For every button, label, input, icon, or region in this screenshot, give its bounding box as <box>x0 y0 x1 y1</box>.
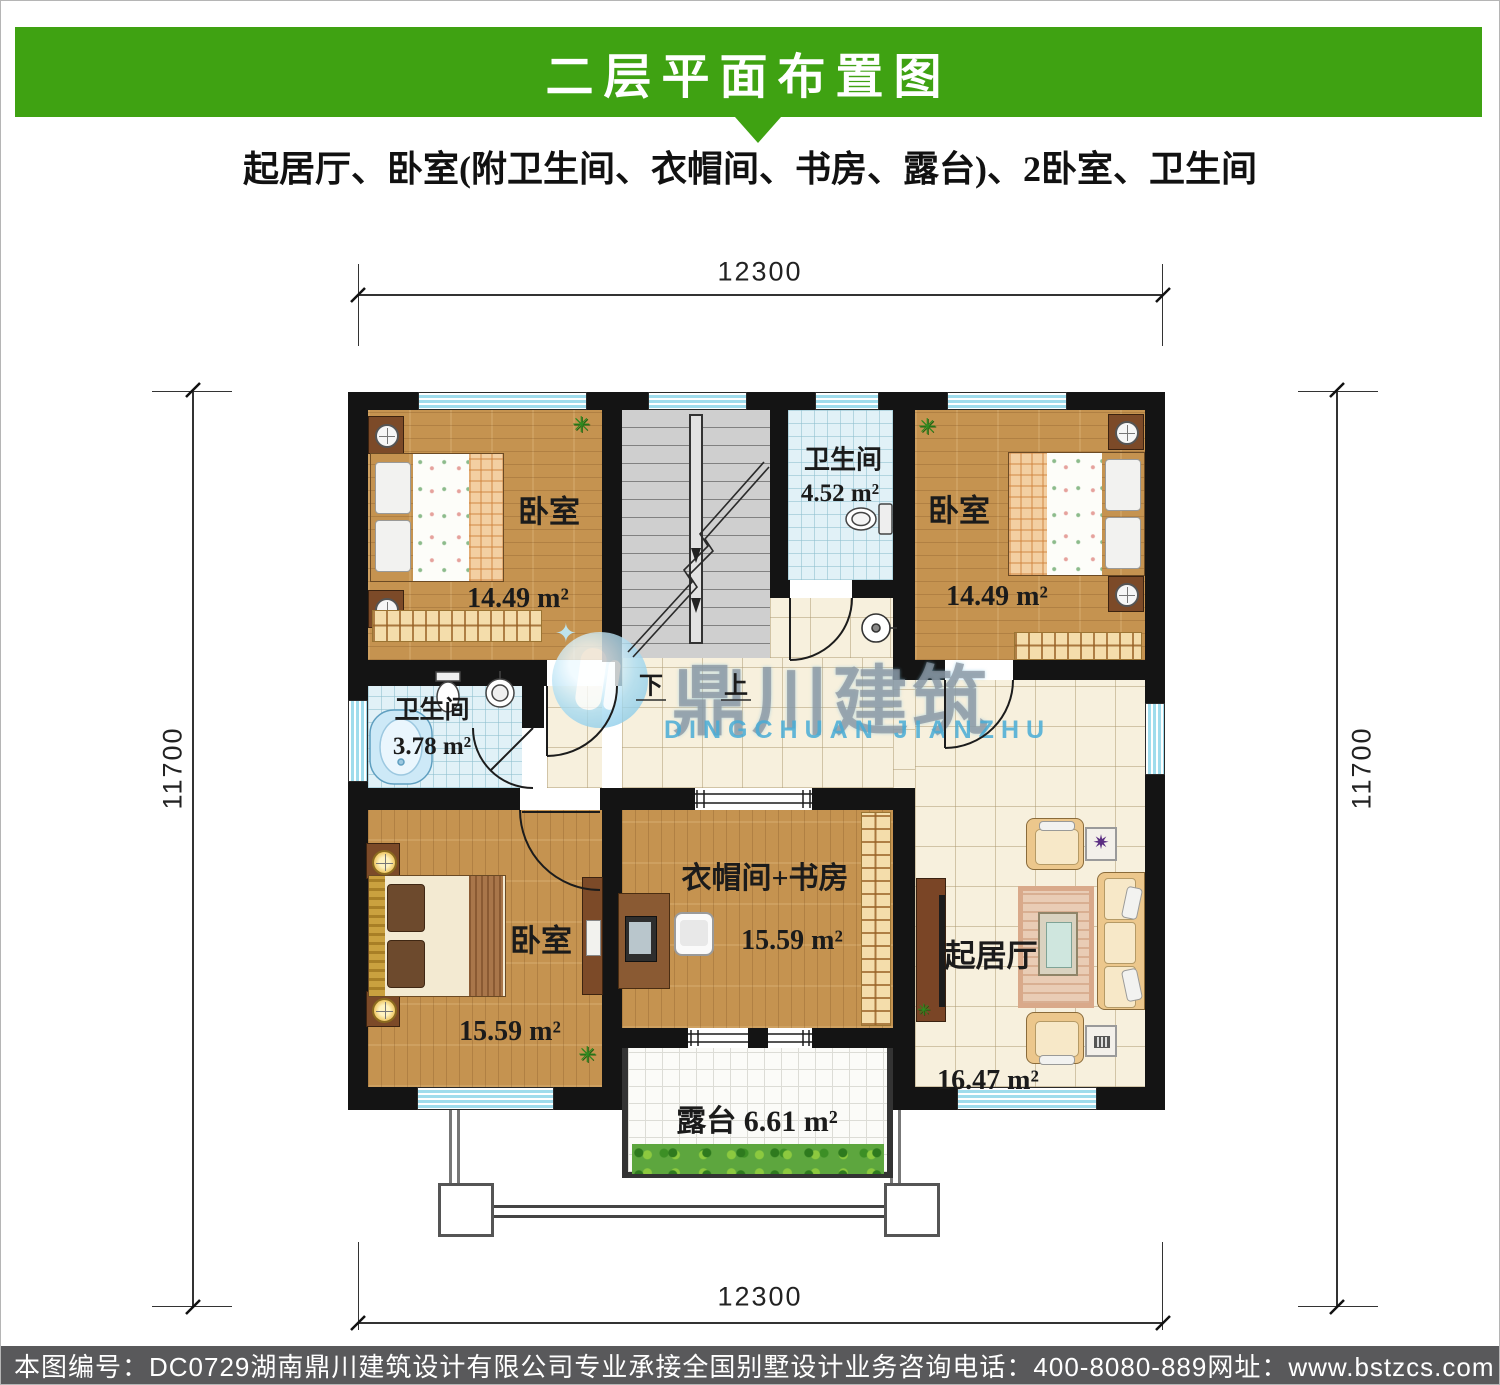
coffee-table <box>1038 912 1078 976</box>
nightstand <box>366 843 400 879</box>
bed <box>1008 452 1145 576</box>
label-bath-top: 卫生间 <box>804 440 882 477</box>
nightstand <box>368 416 404 454</box>
porch-line <box>449 1110 452 1185</box>
desk <box>618 893 670 989</box>
wall <box>812 1028 913 1048</box>
wall <box>602 1048 622 1087</box>
dim-ext <box>358 1242 359 1330</box>
dim-line-right <box>1336 390 1338 1307</box>
plant-icon: ✷ <box>1093 832 1110 854</box>
wall <box>1013 660 1145 680</box>
dim-ext <box>152 391 232 392</box>
area-living: 16.47 m² <box>937 1065 1039 1097</box>
title-banner: 二层平面布置图 <box>15 27 1482 117</box>
dim-ext <box>152 1306 232 1307</box>
sofa <box>1097 872 1145 1010</box>
dim-ext <box>358 264 359 346</box>
porch-pillar <box>884 1183 940 1237</box>
bed <box>370 453 504 582</box>
plant-icon: ✳ <box>578 1042 596 1068</box>
porch-line <box>898 1110 901 1185</box>
plant-icon: ✳ <box>917 1000 930 1020</box>
wall <box>348 788 520 810</box>
terrace-name: 露台 <box>676 1105 736 1138</box>
wall <box>348 660 547 686</box>
dim-label-bottom: 12300 <box>717 1282 802 1313</box>
wall <box>812 788 915 810</box>
footer-company: 湖南鼎川建筑设计有限公司专业承接全国别墅设计业务 <box>250 1347 898 1384</box>
wall <box>852 580 893 598</box>
area-closet-study: 15.59 m² <box>741 925 843 957</box>
page-title: 二层平面布置图 <box>545 37 951 107</box>
armchair <box>1026 1012 1084 1064</box>
dim-ext <box>1162 264 1163 346</box>
bed <box>368 875 506 997</box>
terrace-parapet <box>622 1048 628 1178</box>
side-table <box>1085 1025 1117 1057</box>
porch-step <box>494 1215 884 1218</box>
wall <box>602 410 622 662</box>
window <box>947 392 1067 410</box>
area-bedroom-tr: 14.49 m² <box>946 581 1048 613</box>
side-table: ✷ <box>1085 827 1117 861</box>
terrace-parapet <box>887 1048 893 1178</box>
wall <box>893 410 915 680</box>
area-bedroom-bl: 15.59 m² <box>459 1016 561 1048</box>
wall <box>600 788 622 810</box>
area-bath-top: 4.52 m² <box>801 480 879 508</box>
wall <box>615 660 622 686</box>
dim-line-bottom <box>358 1322 1163 1324</box>
nightstand <box>1108 414 1144 450</box>
label-living: 起居厅 <box>945 931 1038 976</box>
plant-icon: ✳ <box>918 414 936 440</box>
label-bedroom-bl: 卧室 <box>510 916 572 961</box>
hall-floor <box>547 686 602 788</box>
footer-phone: 咨询电话：400-8080-889 <box>898 1347 1207 1384</box>
terrace-area: 6.61 m² <box>744 1105 838 1138</box>
footer-drawing-no: 本图编号：DC0729 <box>14 1347 250 1384</box>
dim-ext <box>1298 1306 1378 1307</box>
label-bedroom-tr: 卧室 <box>928 486 990 531</box>
stairs-down-label: 下 <box>639 666 663 701</box>
window <box>348 700 368 782</box>
label-closet-study: 衣帽间+书房 <box>681 853 848 897</box>
nightstand <box>1108 576 1144 612</box>
dim-label-top: 12300 <box>717 257 802 288</box>
wall <box>622 788 695 810</box>
footer-bar: 本图编号：DC0729 湖南鼎川建筑设计有限公司专业承接全国别墅设计业务 咨询电… <box>0 1346 1500 1385</box>
dim-label-right: 11700 <box>1347 726 1378 809</box>
plant-icon: ✳ <box>572 412 590 438</box>
dresser <box>582 877 603 995</box>
wall <box>893 660 945 680</box>
armchair <box>1026 818 1084 870</box>
window <box>648 392 747 410</box>
label-terrace: 露台 6.61 m² <box>676 1096 837 1140</box>
wall <box>748 1028 768 1048</box>
wall <box>522 660 544 728</box>
dim-line-top <box>358 294 1163 296</box>
wall <box>770 580 790 598</box>
stair-rail <box>689 414 703 644</box>
window <box>417 1087 554 1110</box>
chair <box>674 912 714 956</box>
footer-website: 网址：www.bstzcs.com <box>1207 1347 1494 1384</box>
window <box>815 392 879 410</box>
terrace-planter <box>632 1144 884 1174</box>
hall-floor <box>770 598 893 658</box>
wardrobe <box>861 812 891 1026</box>
dim-ext <box>1162 1242 1163 1330</box>
wall <box>770 410 788 580</box>
window <box>1145 703 1165 775</box>
dim-ext <box>1298 391 1378 392</box>
area-bath-mid: 3.78 m² <box>393 733 471 761</box>
page-subtitle: 起居厅、卧室(附卫生间、衣帽间、书房、露台)、2卧室、卫生间 <box>0 140 1500 192</box>
label-bath-mid: 卫生间 <box>394 690 469 726</box>
wall <box>602 1028 688 1048</box>
window <box>418 392 587 410</box>
wardrobe <box>1014 632 1142 660</box>
dim-label-left: 11700 <box>158 726 189 809</box>
dim-line-left <box>192 390 194 1307</box>
porch-line <box>457 1110 460 1185</box>
stairs-up-label: 上 <box>724 666 748 701</box>
label-bedroom-tl: 卧室 <box>518 487 580 532</box>
floorplan-page: { "header": { "title": "二层平面布置图", "subti… <box>0 0 1500 1385</box>
area-bedroom-tl: 14.49 m² <box>467 583 569 615</box>
porch-pillar <box>438 1183 494 1237</box>
porch-step <box>494 1205 884 1208</box>
